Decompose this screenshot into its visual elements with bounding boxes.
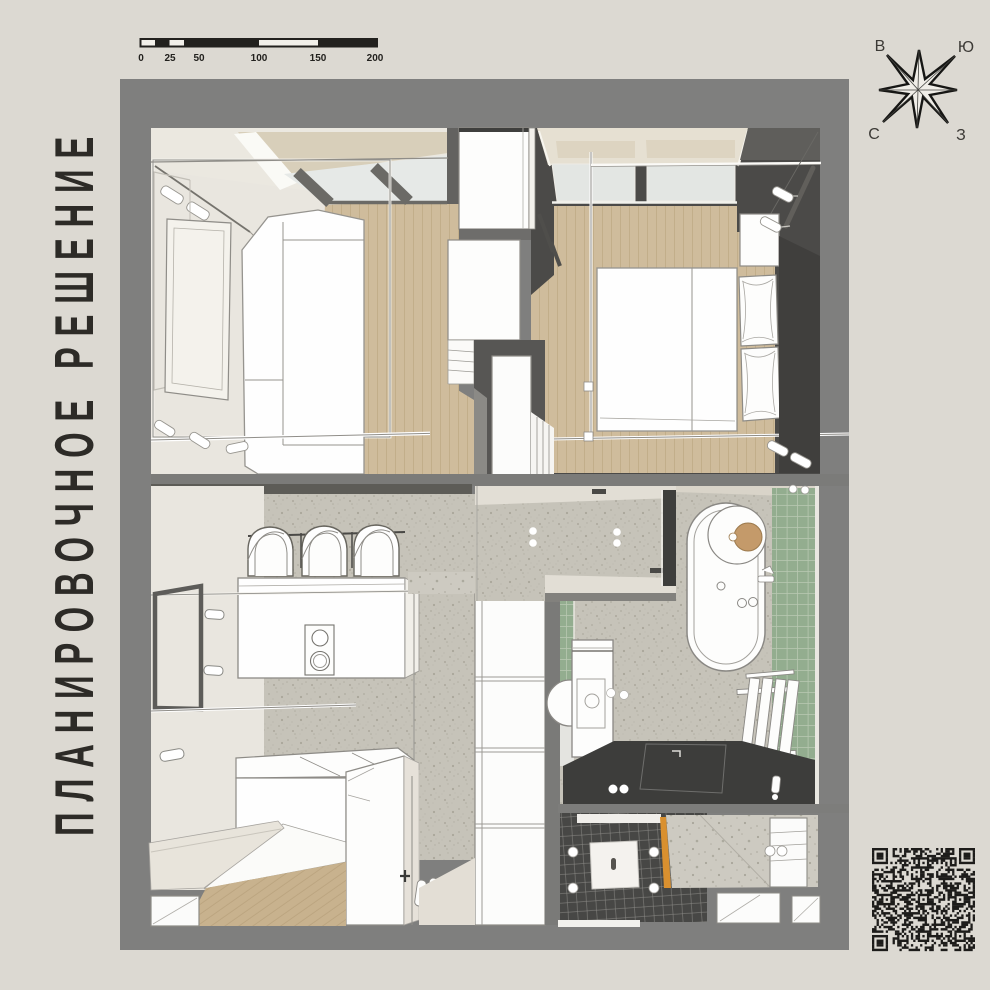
svg-text:100: 100	[251, 53, 268, 64]
svg-text:ПЛАНИРОВОЧНОЕ РЕШЕНИЕ: ПЛАНИРОВОЧНОЕ РЕШЕНИЕ	[43, 126, 105, 836]
svg-text:З: З	[956, 127, 966, 144]
svg-text:В: В	[875, 38, 886, 55]
svg-text:Ю: Ю	[958, 39, 974, 56]
svg-text:С: С	[868, 126, 880, 143]
svg-text:200: 200	[367, 53, 384, 64]
svg-text:0: 0	[138, 53, 144, 64]
svg-text:25: 25	[164, 53, 176, 64]
svg-text:50: 50	[193, 53, 205, 64]
svg-text:150: 150	[310, 53, 327, 64]
